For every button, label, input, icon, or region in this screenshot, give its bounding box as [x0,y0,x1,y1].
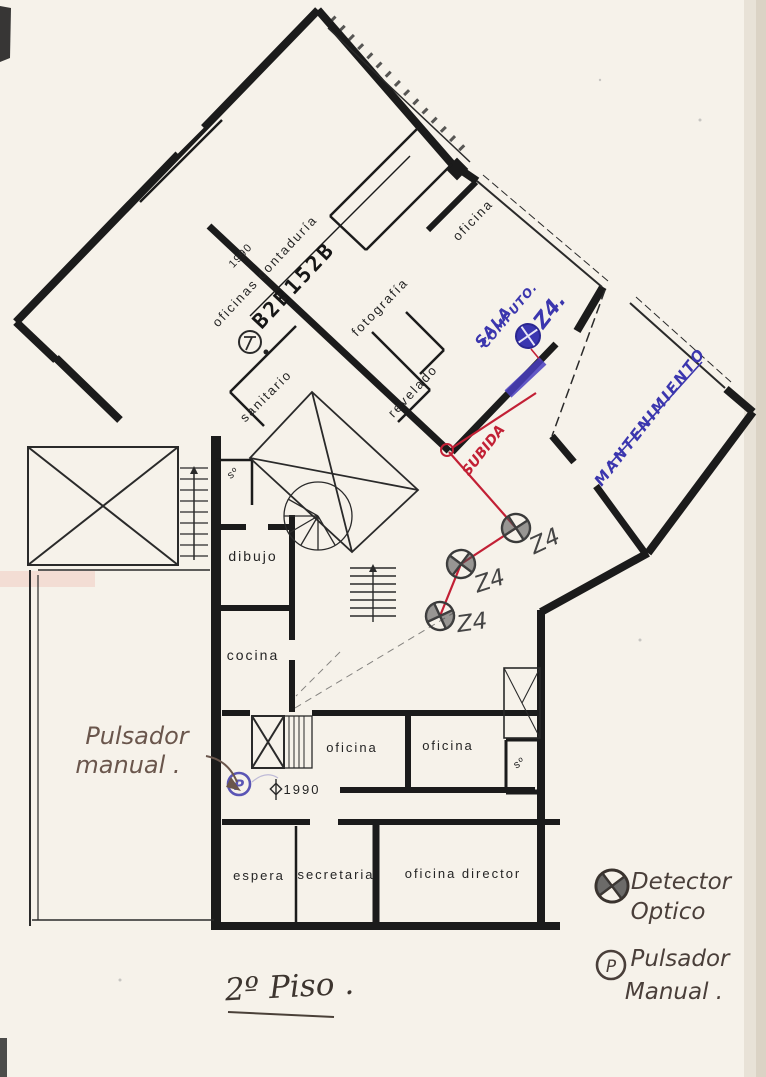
room-label-revelado: revelado [385,362,441,420]
room-label-s-upper: sº [225,465,241,481]
legend-detector-line2: Optico [631,899,706,925]
room-label-oficina-right: oficina [422,738,474,753]
title-underline [228,1012,334,1017]
patio-lightwell [28,447,178,565]
spiral-stair [284,482,352,550]
room-label-espera: espera [233,868,285,883]
mantenimiento-label: MANTENIMIENTO [591,344,710,489]
room-label-oficina-director: oficina director [405,866,522,881]
legend-detector-icon [594,868,630,904]
floor-plan-drawing: oficinas contaduría 1990 fotografía ofic… [0,0,766,1077]
legend-pulsador-icon: P [597,951,625,979]
room-label-fotografia: fotografía [348,275,411,339]
legend: Detector Optico P Pulsador Manual . [594,868,733,1005]
blue-wall-highlight [508,361,543,394]
central-stair [350,564,396,622]
legend-pulsador-line2: Manual . [625,979,723,1005]
west-staircase [180,466,208,560]
scanned-floor-plan-page: oficinas contaduría 1990 fotografía ofic… [0,0,766,1077]
zone-label: Z4 [470,564,508,598]
floor-title-text: 2º Piso . [223,966,355,1009]
legend-p-symbol: P [606,957,617,977]
room-labels: oficinas contaduría 1990 fotografía ofic… [209,196,527,883]
room-label-cocina: cocina [227,647,279,663]
room-label-oficina-left: oficina [326,740,378,755]
pulsador-note-line1: Pulsador [85,722,190,750]
zone-label: Z4 [454,608,489,638]
pulsador-note-line2: manual . [75,751,180,779]
mantenimiento-underline [608,362,702,466]
year-mark-bottom: 1990 [284,782,321,797]
subida-label: SUBIDA [459,422,508,479]
room-label-s-lower: sº [512,755,528,771]
optical-detector-icon [422,598,458,634]
floor-title: 2º Piso . [223,966,355,1017]
legend-detector-line1: Detector [631,869,733,895]
room-label-dibujo: dibujo [228,548,277,564]
legend-pulsador-line1: Pulsador [630,946,731,972]
shaft [504,668,540,738]
note-arrow [206,756,237,782]
room-label-secretaria: secretaria [297,867,374,882]
elevator-and-stair [252,716,312,768]
